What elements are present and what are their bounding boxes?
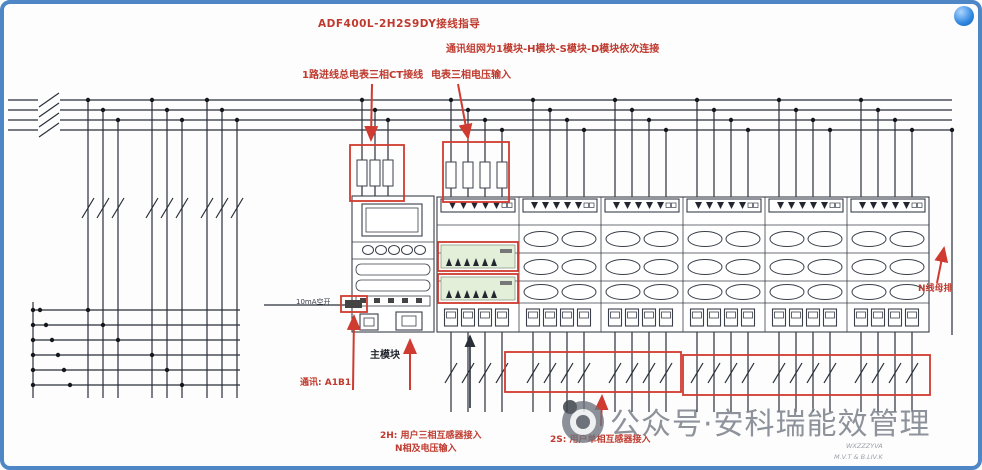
- annotation-ct-input: 1路进线总电表三相CT接线: [302, 66, 423, 81]
- signature-line-2: M.V.T & B.LIV.K: [834, 453, 883, 461]
- highlight-breakers-left: [505, 352, 681, 392]
- blue-sphere-icon: [954, 6, 974, 26]
- highlight-breakers-right: [683, 355, 930, 395]
- watermark-text: 公众号·安科瑞能效管理: [610, 399, 931, 443]
- annotation-daisy-chain: 通讯组网为1模块-H模块-S模块-D模块依次连接: [446, 40, 659, 55]
- annotation-comm-terminals: 通讯: A1B1: [300, 375, 351, 388]
- camera-aperture-logo-icon: [560, 398, 606, 444]
- annotation-voltage-input: 电表三相电压输入: [431, 66, 511, 81]
- breaker-label: 10mA空开: [296, 297, 331, 307]
- module-panel: [437, 197, 929, 332]
- annotation-2h-line2: N相及电压输入: [395, 441, 457, 454]
- annotation-neutral-busbar: N线母排: [918, 281, 953, 294]
- signature-line-1: WXZZZYVA: [846, 442, 883, 450]
- wiring-guide-image: ADF400L-2H2S9DY接线指导 通讯组网为1模块-H模块-S模块-D模块…: [0, 0, 982, 470]
- annotation-2h-line1: 2H: 用户三相互感器接入: [380, 428, 482, 441]
- watermark: 公众号·安科瑞能效管理: [560, 398, 931, 444]
- annotation-title: ADF400L-2H2S9DY接线指导: [318, 16, 480, 31]
- main-module-label: 主模块: [370, 346, 400, 361]
- left-feeder-section: [31, 98, 243, 398]
- rs485-port: [345, 300, 362, 308]
